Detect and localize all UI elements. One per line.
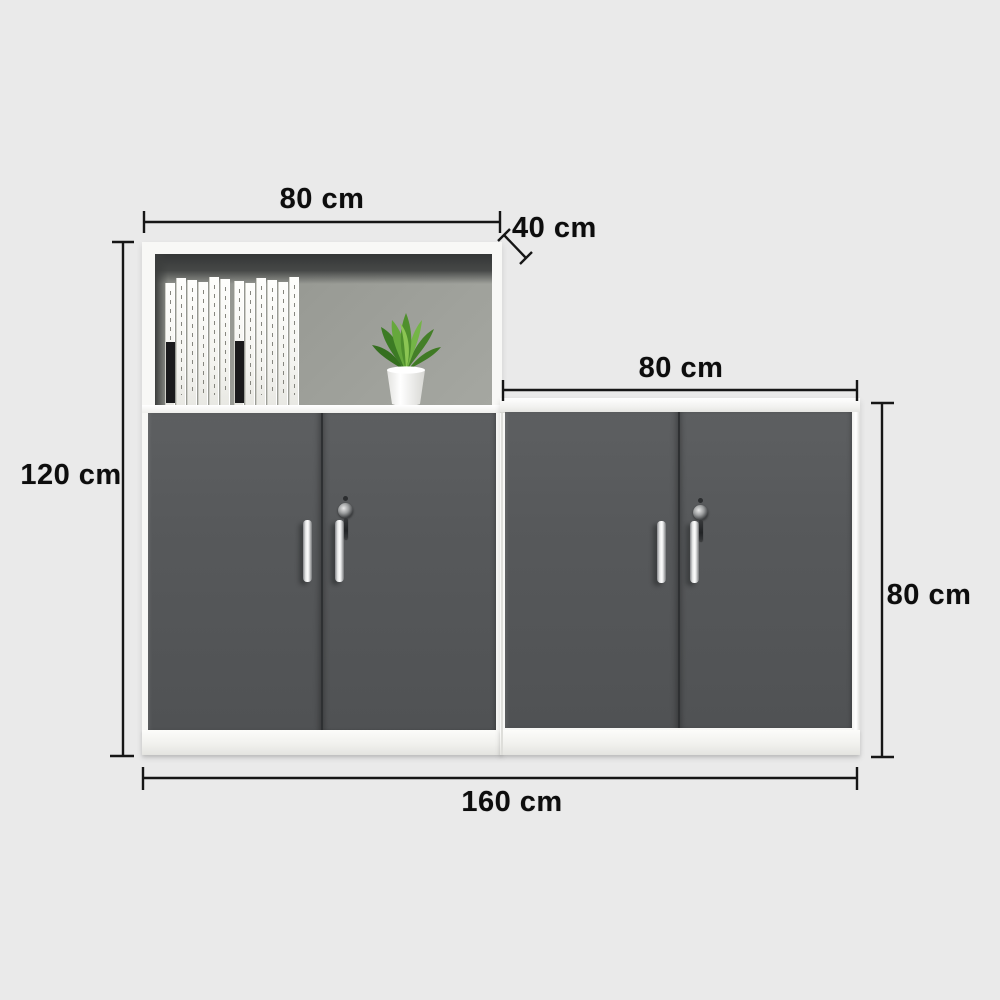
low-cabinet-unit — [500, 398, 860, 755]
dimension-label-left-height: 120 cm — [6, 459, 136, 492]
book-spine — [234, 281, 244, 405]
book-spine — [220, 279, 230, 405]
book-spine — [165, 283, 175, 405]
cabinet-side-edge — [852, 412, 860, 730]
lock-with-keys — [338, 503, 353, 518]
book-spine — [209, 277, 219, 405]
door-panel — [323, 413, 496, 730]
unit-seam — [501, 413, 503, 755]
book-spine — [187, 280, 197, 405]
book-spine — [198, 282, 208, 405]
book-row — [165, 276, 300, 405]
plant-pot — [387, 366, 425, 405]
door-handle — [657, 521, 666, 583]
cabinet-base — [500, 730, 860, 755]
dim-line-left-height — [110, 242, 134, 756]
book-spine — [289, 277, 299, 405]
cabinet-base — [142, 730, 502, 755]
dimension-label-total-width: 160 cm — [432, 786, 592, 819]
shelf-board — [142, 405, 502, 413]
potted-plant — [361, 300, 451, 405]
dimension-label-depth: 40 cm — [512, 212, 642, 245]
book-spine — [267, 280, 277, 405]
dimension-label-right-width: 80 cm — [611, 352, 751, 385]
book-spine — [245, 283, 255, 405]
door-panel — [148, 413, 321, 730]
cabinet-top-surface — [500, 398, 860, 413]
open-shelf — [155, 254, 492, 405]
door-handle — [690, 521, 699, 583]
left-unit-doors — [148, 413, 496, 730]
book-spine — [278, 282, 288, 405]
door-panel — [505, 412, 678, 728]
dimension-label-left-width: 80 cm — [252, 183, 392, 216]
book-spine — [176, 278, 186, 405]
door-handle — [303, 520, 312, 582]
lock-with-keys — [693, 505, 708, 520]
dimension-label-right-height: 80 cm — [858, 579, 1000, 612]
right-unit-doors — [505, 412, 852, 728]
door-panel — [680, 412, 853, 728]
product-dimension-diagram: 80 cm 40 cm 80 cm 120 cm 80 cm 160 cm — [0, 0, 1000, 1000]
door-handle — [335, 520, 344, 582]
plant-leaves — [372, 313, 441, 370]
book-spine — [256, 278, 266, 405]
tall-cabinet-unit — [142, 242, 502, 755]
